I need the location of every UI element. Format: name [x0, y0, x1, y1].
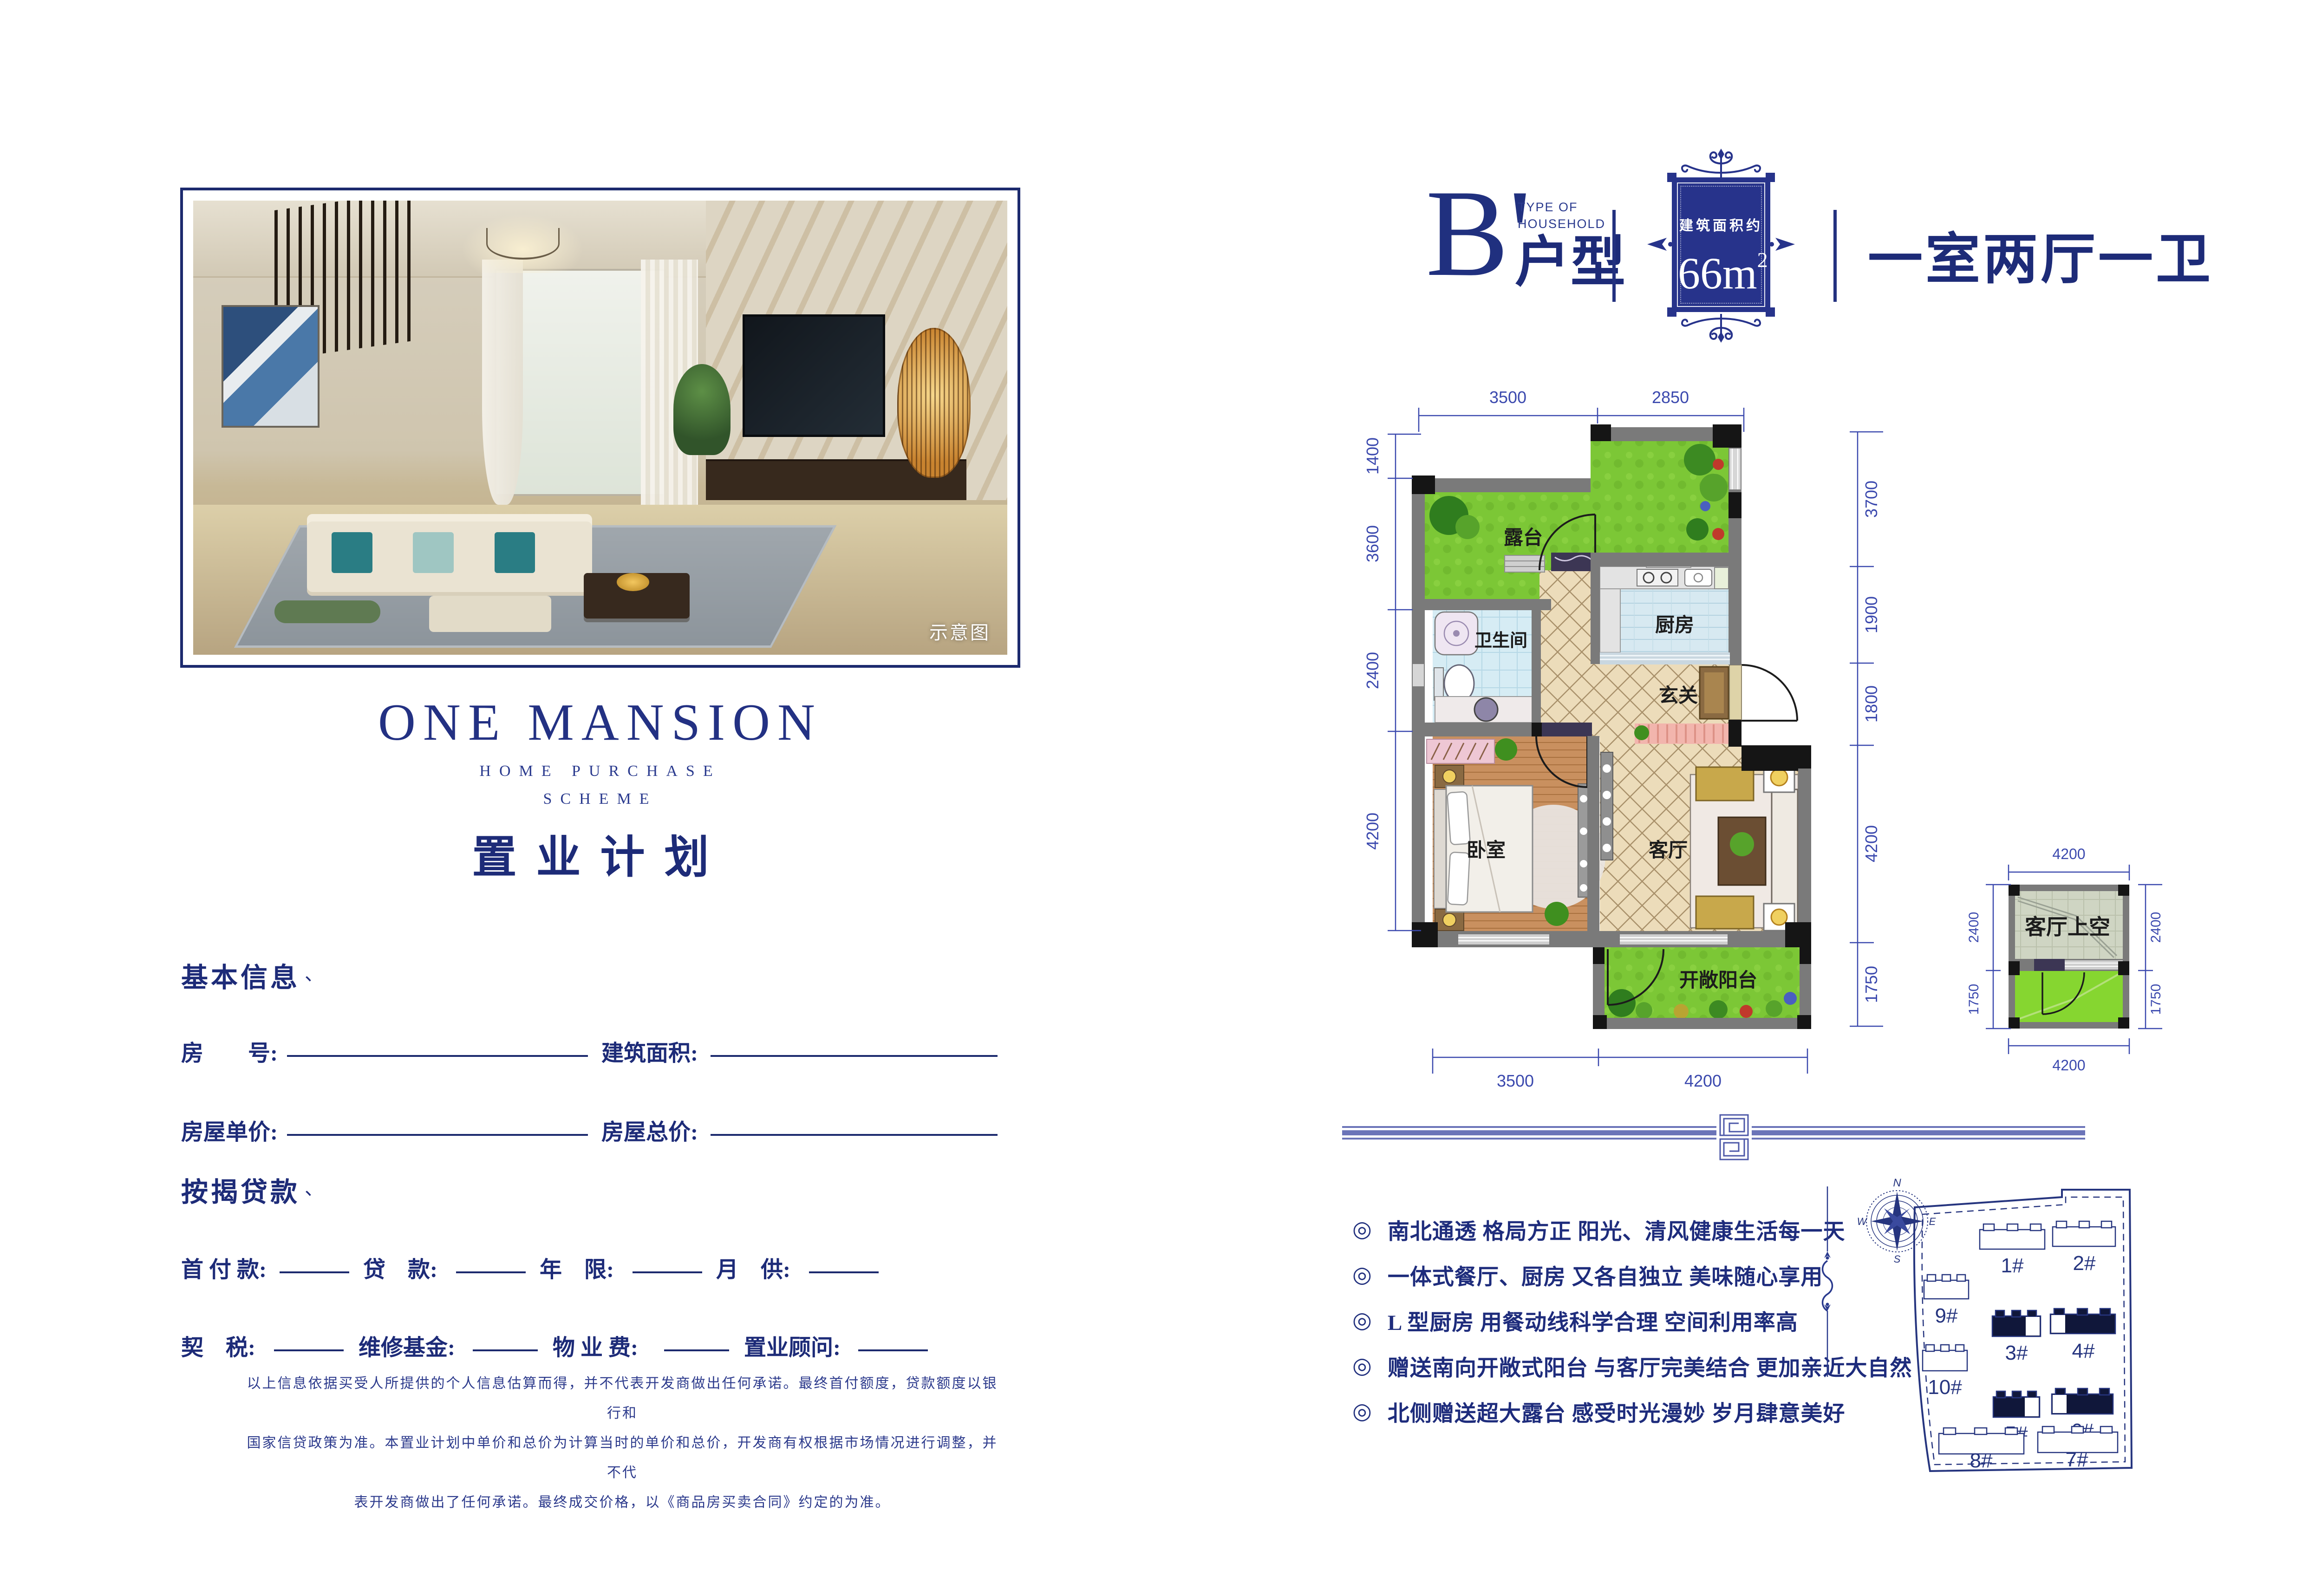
interior-photo: 示意图 — [193, 201, 1007, 655]
divider-band-top — [1342, 1126, 2085, 1128]
dim-left-1: 1400 — [1363, 437, 1382, 475]
dim-left-2: 3600 — [1363, 525, 1382, 562]
field-floor-area-blank — [711, 1055, 998, 1057]
field-down-payment-label: 首 付 款: — [181, 1251, 267, 1283]
unit-type-cn: 户型 — [1515, 217, 1626, 297]
dim-right-3: 1800 — [1862, 685, 1881, 723]
field-loan-blank — [456, 1271, 526, 1273]
photo-chandelier-arms — [486, 228, 560, 260]
field-deed-tax-label: 契 税: — [181, 1329, 255, 1361]
area-badge: 建筑面积约 66m2 — [1646, 148, 1796, 343]
divider-band-mid — [1342, 1130, 2085, 1135]
basic-info-row-1: 房 号: 建筑面积: — [181, 1035, 1012, 1062]
badge-corner — [1667, 307, 1676, 317]
dim-right-1: 3700 — [1862, 481, 1881, 518]
field-loan-label: 贷 款: — [363, 1251, 437, 1283]
field-property-fee-label: 物 业 费: — [553, 1329, 638, 1361]
building-label: 8# — [1970, 1449, 1993, 1472]
photo-table-decor — [617, 573, 649, 591]
field-monthly-payment-label: 月 供: — [716, 1251, 790, 1283]
site-building: 9# — [1924, 1275, 1969, 1327]
room-label-bedroom: 卧室 — [1467, 840, 1506, 861]
site-building: 1# — [1980, 1224, 2045, 1277]
brand-subtitle-1: HOME PURCHASE — [180, 762, 1020, 780]
title-tick: 、 — [305, 964, 323, 984]
compass-w: W — [1857, 1216, 1868, 1227]
badge-arrow-left-icon — [1646, 230, 1673, 258]
upper-plan-window — [2065, 960, 2123, 970]
field-property-fee-blank — [664, 1349, 729, 1351]
basic-info-row-2: 房屋单价: 房屋总价: — [181, 1114, 1012, 1141]
upper-plan-marble — [2034, 959, 2065, 971]
badge-arrow-right-icon — [1769, 230, 1796, 258]
upper-dim-top: 4200 — [2052, 846, 2085, 862]
photo-sofa-pillow-teal1 — [332, 532, 372, 573]
dim-top-1: 3500 — [1489, 388, 1526, 407]
field-term-label: 年 限: — [540, 1251, 614, 1283]
field-maintenance-fund-label: 维修基金: — [359, 1329, 455, 1361]
dim-left-4: 4200 — [1363, 813, 1382, 850]
building-label: 7# — [2066, 1448, 2088, 1471]
site-building: 2# — [2053, 1221, 2115, 1275]
photo-sofa-pillow-teal2 — [413, 532, 454, 573]
field-consultant-label: 置业顾问: — [744, 1329, 841, 1361]
site-plan: 1# 2# 9# 3# — [1902, 1179, 2148, 1495]
badge-flourish-bottom-icon — [1646, 313, 1796, 344]
upper-dim-bottom: 4200 — [2052, 1057, 2085, 1074]
mortgage-row-2: 契 税: 维修基金: 物 业 费: 置业顾问: — [181, 1329, 1017, 1357]
disclaimer-line: 表开发商做出了任何承诺。最终成交价格，以《商品房买卖合同》约定的为准。 — [241, 1488, 1003, 1518]
area-badge-inner: 建筑面积约 66m2 — [1677, 182, 1765, 307]
bullet-icon: ◎ — [1352, 1398, 1372, 1424]
badge-corner — [1766, 307, 1775, 317]
bullet-icon: ◎ — [1352, 1262, 1372, 1288]
bullet-icon: ◎ — [1352, 1307, 1372, 1333]
photo-birdcage-bars — [897, 328, 971, 478]
room-label-balcony: 开敞阳台 — [1679, 970, 1757, 991]
upper-dim-left-1: 2400 — [1966, 912, 1982, 943]
knot-ornament-icon — [1716, 1112, 1752, 1162]
building-label: 9# — [1935, 1304, 1958, 1327]
area-badge-box: 建筑面积约 66m2 — [1672, 177, 1770, 312]
building-label: 2# — [2073, 1252, 2096, 1275]
photo-plant — [673, 364, 731, 455]
field-unit-price-blank — [287, 1134, 588, 1136]
room-label-living: 客厅 — [1649, 840, 1688, 861]
disclaimer-line: 以上信息依据买受人所提供的个人信息估算而得，并不代表开发商做出任何承诺。最终首付… — [241, 1369, 1003, 1428]
photo-watermark: 示意图 — [929, 618, 991, 645]
building-label: 4# — [2072, 1340, 2095, 1362]
field-maintenance-fund-blank — [473, 1349, 538, 1351]
title-tick: 、 — [305, 1178, 323, 1199]
upper-plan-label: 客厅上空 — [2025, 915, 2110, 939]
brochure-spread: 示意图 ONE MANSION HOME PURCHASE SCHEME 置业计… — [0, 0, 2322, 1596]
site-building: 3# — [1992, 1310, 2041, 1364]
field-monthly-payment-blank — [809, 1271, 879, 1273]
floor-plan: 露台 卫生间 厨房 玄关 卧室 客厅 开敞阳台 3500 2850 3500 4… — [1361, 376, 1909, 1091]
area-value: 66m2 — [1678, 235, 1764, 299]
disclaimer: 以上信息依据买受人所提供的个人信息估算而得，并不代表开发商做出任何承诺。最终首付… — [241, 1369, 1003, 1518]
brand-subtitle-2: SCHEME — [180, 790, 1020, 808]
photo-curtain-left — [482, 260, 523, 505]
brand-title: ONE MANSION — [180, 693, 1020, 753]
field-deed-tax-blank — [274, 1349, 344, 1351]
field-total-price-label: 房屋总价: — [601, 1114, 698, 1146]
badge-corner — [1766, 173, 1775, 182]
photo-bolster — [274, 600, 380, 623]
field-floor-area-label: 建筑面积: — [601, 1035, 698, 1067]
photo-tv — [743, 314, 885, 437]
bedroom-floor — [1427, 736, 1605, 931]
photo-sofa-pillow-teal3 — [495, 532, 535, 573]
field-room-number-blank — [287, 1055, 588, 1057]
scroll-divider-icon — [1813, 1186, 1841, 1377]
upper-dim-right-1: 2400 — [2148, 912, 2164, 943]
field-total-price-blank — [711, 1134, 998, 1136]
room-label-entry: 玄关 — [1659, 685, 1698, 707]
badge-corner — [1667, 173, 1676, 182]
photo-ottoman — [429, 596, 551, 632]
unit-layout-text: 一室两厅一卫 — [1868, 215, 2213, 294]
kitchen-floor — [1600, 567, 1730, 652]
dim-right-4: 4200 — [1862, 825, 1881, 862]
interior-photo-frame: 示意图 — [180, 188, 1020, 668]
photo-artwork — [222, 305, 319, 428]
site-building: 7# — [2038, 1427, 2118, 1471]
dim-bottom-2: 4200 — [1684, 1071, 1722, 1090]
feature-item: ◎ 北侧赠送超大露台 感受时光漫妙 岁月肆意美好 — [1352, 1395, 1845, 1427]
dim-right-2: 1900 — [1862, 596, 1881, 633]
area-caption: 建筑面积约 — [1678, 214, 1764, 235]
section-basic-info-title: 基本信息、 — [181, 956, 323, 995]
compass-n: N — [1893, 1177, 1901, 1189]
room-label-bath: 卫生间 — [1474, 631, 1527, 651]
room-label-kitchen: 厨房 — [1655, 614, 1694, 636]
bathroom-floor — [1433, 610, 1539, 723]
upper-dim-right-2: 1750 — [2148, 984, 2164, 1015]
feature-item: ◎ 一体式餐厅、厨房 又各自独立 美味随心享用 — [1352, 1258, 1823, 1291]
room-label-terrace: 露台 — [1504, 527, 1543, 549]
field-term-blank — [633, 1271, 702, 1273]
feature-item: ◎ L 型厨房 用餐动线科学合理 空间利用率高 — [1352, 1304, 1798, 1336]
field-unit-price-label: 房屋单价: — [181, 1114, 278, 1146]
brand-cn-title: 置业计划 — [180, 821, 1020, 886]
section-mortgage-title: 按揭贷款、 — [181, 1170, 323, 1209]
upper-level-plan: 客厅上空 4200 4200 2400 1750 2400 1750 — [1960, 831, 2183, 1091]
area-sup: 2 — [1757, 248, 1768, 272]
field-down-payment-blank — [280, 1271, 349, 1273]
compass-s: S — [1894, 1253, 1901, 1265]
field-room-number-label: 房 号: — [181, 1035, 278, 1067]
building-label: 3# — [2005, 1342, 2028, 1364]
mortgage-row-1: 首 付 款: 贷 款: 年 限: 月 供: — [181, 1251, 1017, 1279]
entry-threshold — [1729, 665, 1741, 720]
field-consultant-blank — [858, 1349, 928, 1351]
bullet-icon: ◎ — [1352, 1353, 1372, 1379]
site-building: 4# — [2050, 1309, 2115, 1362]
divider-band-bottom — [1342, 1138, 2085, 1140]
upper-dim-left-2: 1750 — [1966, 984, 1982, 1015]
site-building: 8# — [1939, 1428, 2024, 1472]
header-divider-right — [1833, 210, 1837, 302]
divider-ornament-bg — [1716, 1112, 1752, 1162]
dim-bottom-1: 3500 — [1497, 1071, 1534, 1090]
building-label: 1# — [2001, 1254, 2024, 1277]
bullet-icon: ◎ — [1352, 1216, 1372, 1242]
disclaimer-line: 国家信贷政策为准。本置业计划中单价和总价为计算当时的单价和总价，开发商有权根据市… — [241, 1428, 1003, 1488]
dim-left-3: 2400 — [1363, 652, 1382, 689]
building-label: 10# — [1928, 1376, 1962, 1399]
feature-item: ◎ 南北通透 格局方正 阳光、清风健康生活每一天 — [1352, 1213, 1845, 1245]
header-divider-left — [1612, 210, 1616, 302]
site-building: 10# — [1923, 1345, 1967, 1399]
dim-right-5: 1750 — [1862, 966, 1881, 1003]
dim-top-2: 2850 — [1652, 388, 1689, 407]
